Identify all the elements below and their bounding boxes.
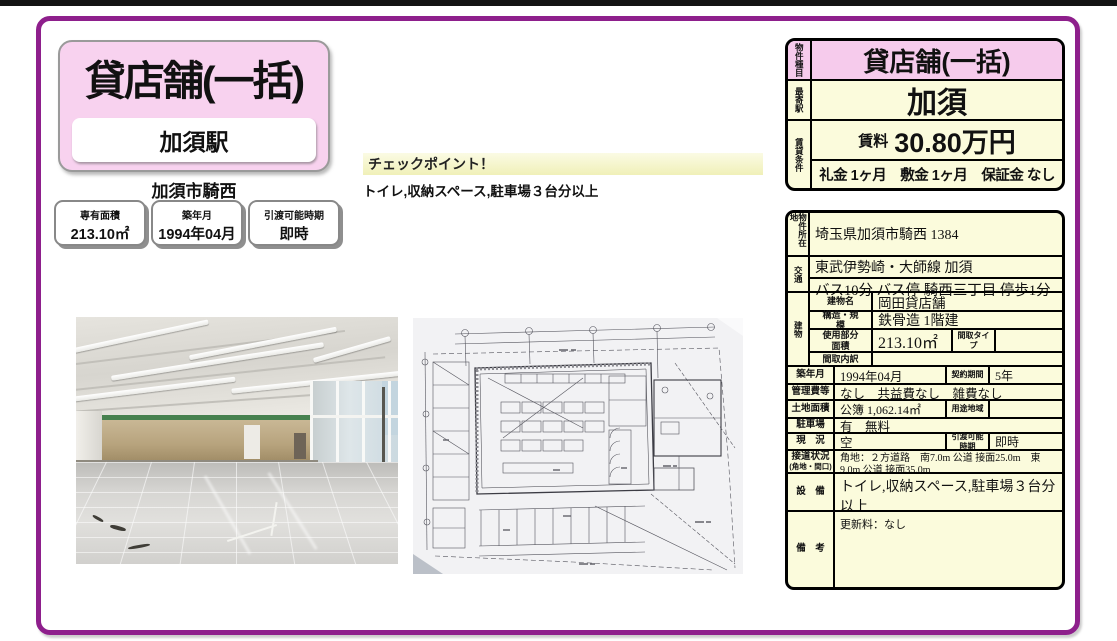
contract-value: 5年 [990, 367, 1062, 383]
station-box: 加須駅 [72, 118, 316, 162]
address-value: 埼玉県加須市騎西 1384 [810, 213, 1062, 255]
badge-label: 専有面積 [56, 207, 144, 222]
badge-floor-area: 専有面積 213.10㎡ [54, 200, 146, 246]
land-value: 公簿 1,062.14㎡ [835, 401, 945, 417]
management-value: なし 共益費なし 雑費なし [835, 385, 1062, 399]
building-name-value: 岡田貸店舗 [873, 293, 1062, 310]
building-name-label: 建物名 [810, 293, 873, 310]
badge-value: 即時 [250, 223, 338, 244]
summary-type-label: 物件種目 [788, 41, 812, 81]
row-transport: 交通 東武伊勢崎・大師線 加須 バス10分 バス停 騎西三丁目 停歩1分 [788, 255, 1062, 291]
equipment-label: 設 備 [788, 474, 835, 510]
notes-value: 更新料：なし [835, 512, 1062, 587]
notes-label: 備 考 [788, 512, 835, 587]
structure-label: 構造・規模 [810, 312, 873, 328]
detail-table: 物件所在地 埼玉県加須市騎西 1384 交通 東武伊勢崎・大師線 加須 バス10… [785, 210, 1065, 590]
summary-type-value: 貸店舗(一括) [812, 41, 1062, 81]
badge-label: 築年月 [153, 207, 241, 222]
row-management: 管理費等 なし 共益費なし 雑費なし [788, 383, 1062, 399]
row-land: 土地面積 公簿 1,062.14㎡ 用途地域 [788, 399, 1062, 417]
road-value: 角地：２方道路 南7.0m 公道 接面25.0m 東9.0m 公道 接面35.0… [835, 451, 1062, 472]
badge-handover: 引渡可能時期 即時 [248, 200, 340, 246]
badge-label: 引渡可能時期 [250, 207, 338, 222]
summary-rent: 賃料 30.80万円 [812, 121, 1062, 161]
row-equipment: 設 備 トイレ,収納スペース,駐車場３台分以上 [788, 472, 1062, 510]
layout-detail-label: 間取内訳 [810, 353, 873, 365]
transport-line1: 東武伊勢崎・大師線 加須 [810, 257, 1062, 277]
photo-floor [76, 462, 398, 564]
row-building: 建物 建物名 岡田貸店舗 構造・規模 鉄骨造 1階建 使用部分面積 213.10… [788, 291, 1062, 365]
status-label: 現 況 [788, 434, 835, 449]
row-road: 接道状況 (角地・間口) 角地：２方道路 南7.0m 公道 接面25.0m 東9… [788, 449, 1062, 472]
row-parking: 駐車場 有 無料 [788, 417, 1062, 432]
checkpoint-text: トイレ,収納スペース,駐車場３台分以上 [363, 180, 598, 200]
layout-type-value [996, 330, 1062, 351]
layout-detail-value [873, 353, 1062, 365]
land-label: 土地面積 [788, 401, 835, 417]
top-border [0, 0, 1117, 6]
row-address: 物件所在地 埼玉県加須市騎西 1384 [788, 213, 1062, 255]
summary-table: 物件種目 貸店舗(一括) 最寄駅 加須 賃貸条件 賃料 30.80万円 礼金 1… [785, 38, 1065, 191]
row-notes: 備 考 更新料：なし [788, 510, 1062, 587]
parking-value: 有 無料 [835, 419, 1062, 432]
contract-label: 契約期間 [945, 367, 990, 383]
property-type-banner: 貸店舗(一括) 加須駅 [58, 40, 330, 172]
property-type-title: 貸店舗(一括) [60, 47, 328, 107]
parking-label: 駐車場 [788, 419, 835, 432]
layout-type-label: 間取タイプ [951, 330, 996, 351]
row-status: 現 況 空 引渡可能時期 即時 [788, 432, 1062, 449]
built-label: 築年月 [788, 367, 835, 383]
area-label: 加須市騎西 [58, 177, 330, 202]
badge-built: 築年月 1994年04月 [151, 200, 243, 246]
floorplan-image [413, 318, 743, 574]
structure-value: 鉄骨造 1階建 [873, 312, 1062, 328]
floor-area-label: 使用部分面積 [810, 330, 873, 351]
built-value: 1994年04月 [835, 367, 945, 383]
summary-station-label: 最寄駅 [788, 81, 812, 121]
rent-value: 30.80万円 [894, 121, 1016, 160]
rent-label: 賃料 [858, 130, 888, 151]
zoning-label: 用途地域 [945, 401, 990, 417]
summary-conditions-label: 賃貸条件 [788, 121, 812, 188]
building-label: 建物 [788, 293, 810, 365]
equipment-value: トイレ,収納スペース,駐車場３台分以上 [835, 474, 1062, 510]
address-label: 物件所在地 [788, 213, 810, 255]
handover-label: 引渡可能時期 [945, 434, 990, 449]
row-built: 築年月 1994年04月 契約期間 5年 [788, 365, 1062, 383]
checkpoint-heading: チェックポイント！ [363, 153, 763, 175]
badge-value: 213.10㎡ [56, 223, 144, 244]
interior-photo [76, 317, 398, 564]
summary-station-value: 加須 [812, 81, 1062, 121]
handover-value: 即時 [990, 434, 1062, 449]
floor-area-value: 213.10㎡ [873, 330, 951, 351]
management-label: 管理費等 [788, 385, 835, 399]
badge-value: 1994年04月 [153, 223, 241, 244]
zoning-value [990, 401, 1062, 417]
transport-label: 交通 [788, 257, 810, 291]
road-label: 接道状況 (角地・間口) [788, 451, 835, 472]
summary-terms: 礼金 1ヶ月 敷金 1ヶ月 保証金 なし [812, 161, 1062, 188]
status-value: 空 [835, 434, 945, 449]
